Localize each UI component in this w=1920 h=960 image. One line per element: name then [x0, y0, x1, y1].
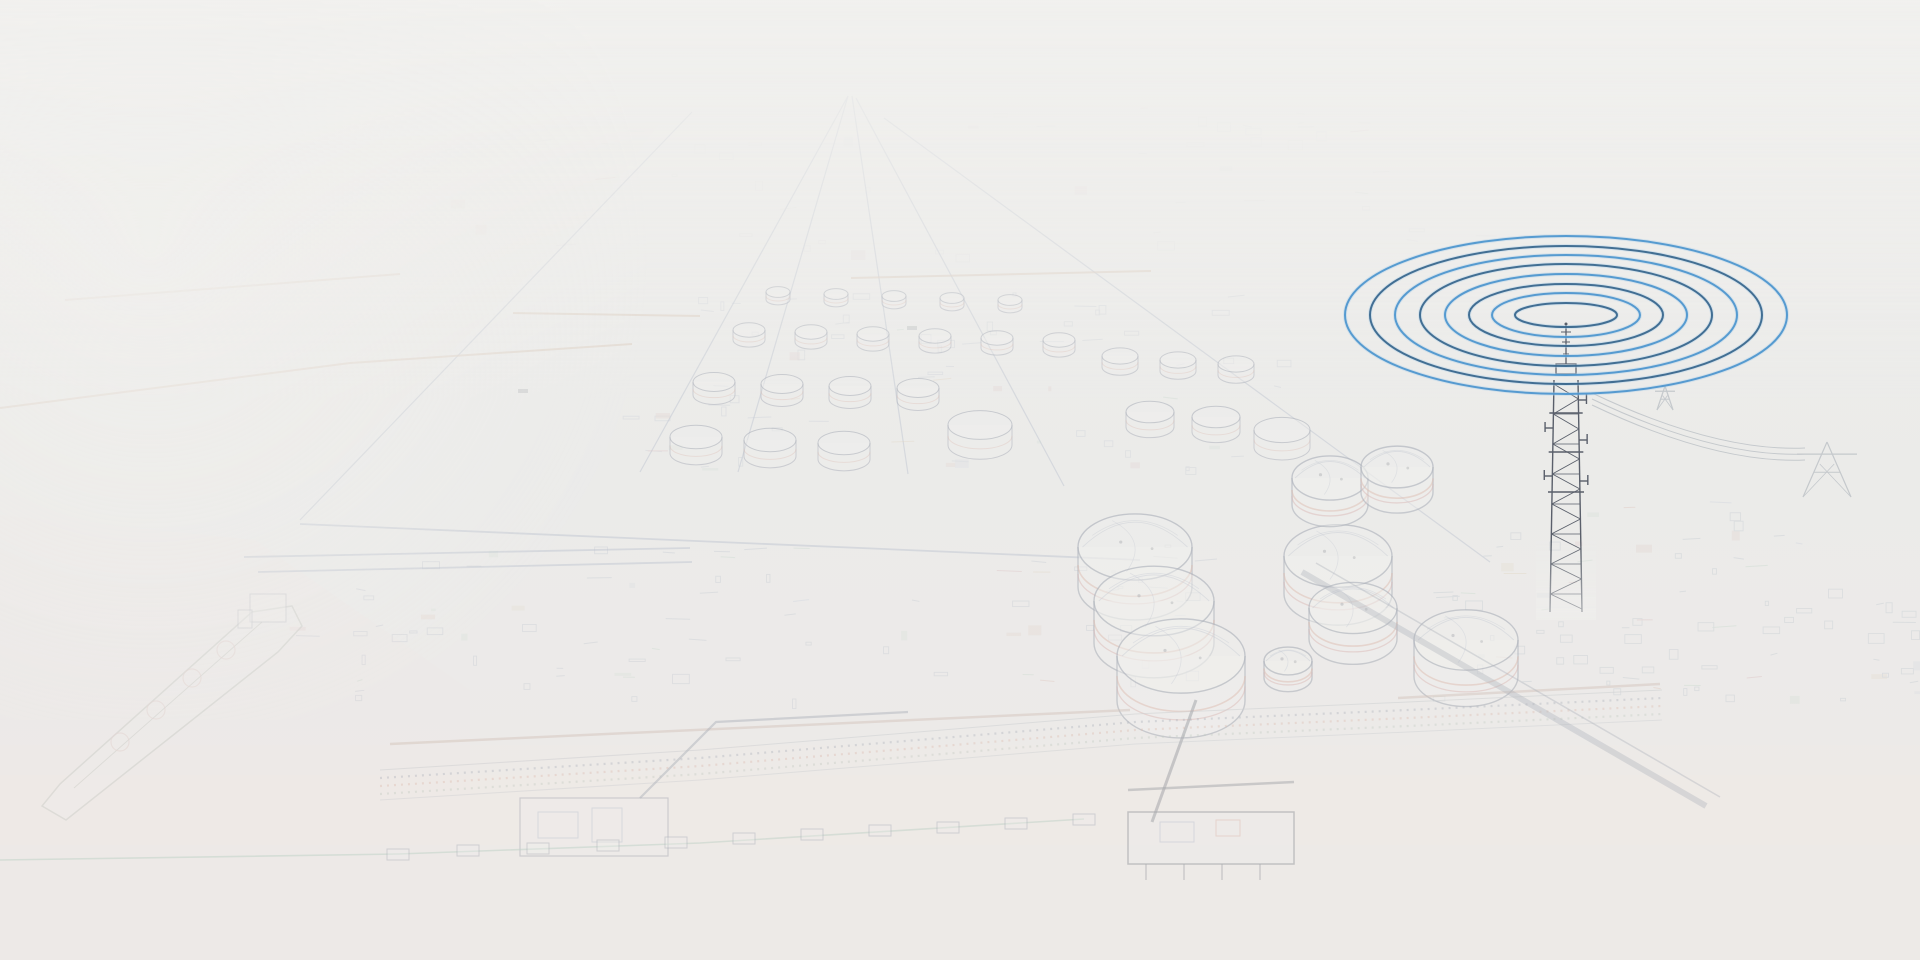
left-haze — [0, 0, 980, 720]
scene — [0, 0, 1920, 960]
aerial-sketch-svg — [0, 0, 1920, 960]
